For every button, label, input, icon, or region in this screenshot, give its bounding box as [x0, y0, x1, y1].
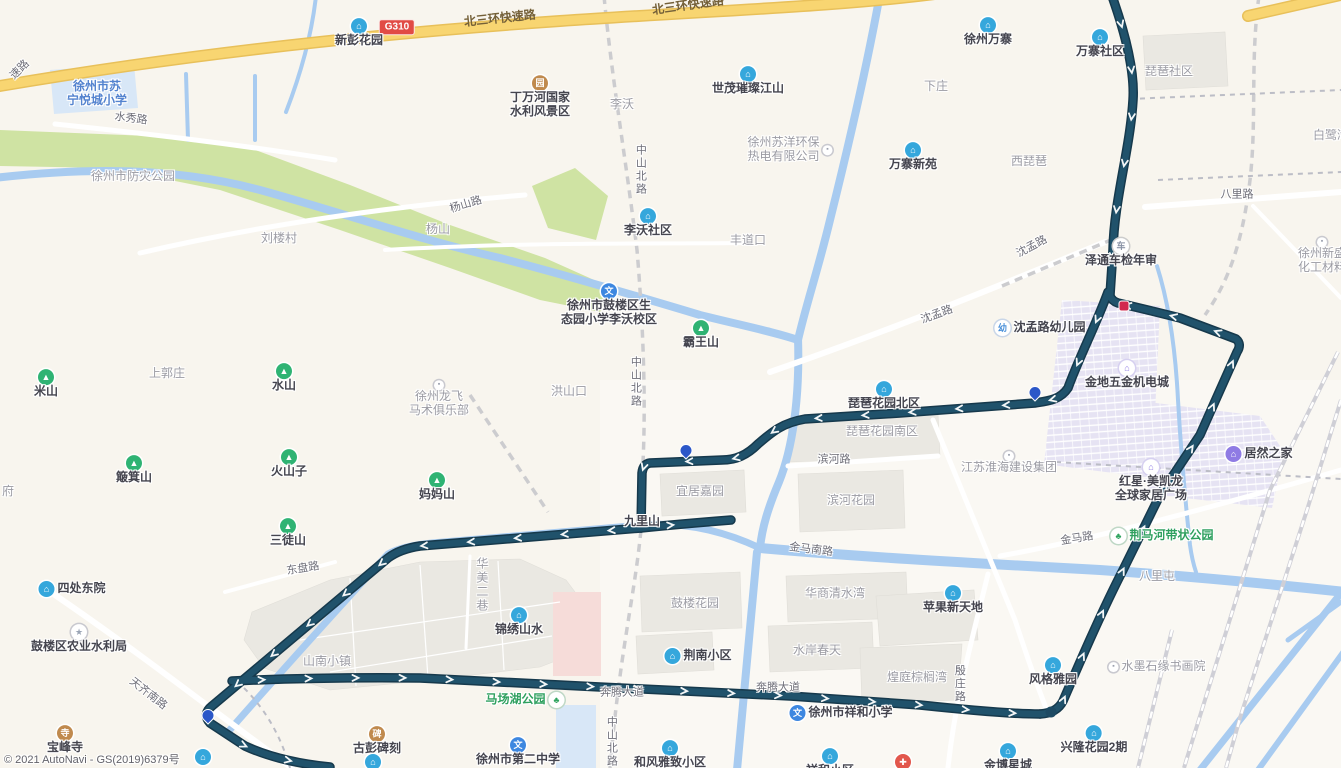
area-label-fangzai-park: 徐州市防灾公园	[91, 170, 175, 184]
bus-stop-pin[interactable]	[1029, 386, 1042, 399]
label-text: 中山北路	[634, 144, 647, 196]
label-text: 徐州万寨	[964, 33, 1012, 47]
poi-xinsheng-chemical[interactable]: ▪徐州新盛化工材料	[1298, 237, 1341, 275]
area-label-fengdaokou: 丰道口	[730, 234, 766, 248]
dot-white-icon: ▪	[1108, 662, 1118, 672]
poi-icon-clipped[interactable]: ⌂	[365, 754, 381, 768]
label-text: 新彭花园	[335, 34, 383, 48]
label-text: 徐州市鼓楼区生态园小学李沃校区	[561, 299, 657, 327]
carve-brown-icon: 碑	[369, 726, 385, 742]
label-text: 奔腾大道	[756, 682, 800, 695]
label-text: 洪山口	[551, 385, 587, 399]
label-text: 宜居嘉园	[676, 485, 724, 499]
label-text: 徐州苏洋环保热电有限公司	[747, 136, 819, 164]
area-label-hongshankou: 洪山口	[551, 385, 587, 399]
area-label-pipa-garden-south: 琵琶花园南区	[846, 425, 918, 439]
mountain-green-icon: ▲	[280, 518, 296, 534]
area-label-jiulishan: 九里山	[624, 515, 660, 529]
mountain-green-icon: ▲	[126, 455, 142, 471]
label-text: 四处东院	[57, 582, 105, 596]
poi-mamashan[interactable]: ▲妈妈山	[419, 472, 455, 502]
area-label-binhe-garden: 滨河花园	[827, 494, 875, 508]
label-text: 山南小镇	[303, 655, 351, 669]
label-text: 徐州新盛化工材料	[1298, 247, 1341, 275]
poi-jingmahe-park[interactable]: ♣荆马河带状公园	[1110, 528, 1213, 544]
area-label-huamei-lane: 华美二巷	[474, 557, 488, 613]
label-text: 红星·美凯龙全球家居广场	[1115, 475, 1187, 503]
bus-stop-pin[interactable]	[202, 709, 215, 722]
poi-icon-clipped[interactable]: ⌂	[195, 749, 211, 765]
label-text: 杨山	[426, 223, 450, 237]
label-text: 世茂璀璨江山	[712, 82, 784, 96]
shop-purple-icon: ⌂	[1225, 446, 1241, 462]
poi-xianghe-primary-school[interactable]: 文徐州市祥和小学	[789, 705, 892, 721]
label-text: 琵琶花园北区	[848, 397, 920, 411]
building-blue-icon: ⌂	[365, 754, 381, 768]
label-text: 水岸春天	[793, 644, 841, 658]
label-text: 霸王山	[683, 336, 719, 350]
label-text: 鼓楼花园	[671, 597, 719, 611]
label-text: 风格雅园	[1029, 673, 1077, 687]
building-blue-icon: ⌂	[1045, 657, 1061, 673]
dot-white-icon: ▪	[823, 145, 833, 155]
hospital-red-icon: ✚	[895, 754, 911, 768]
label-text: 八里屯	[1139, 570, 1175, 584]
label-text: 上郭庄	[149, 367, 185, 381]
area-label-bailuwan: 白鹭湾	[1313, 129, 1341, 143]
label-text: 泽通车检年审	[1085, 254, 1157, 268]
label-text: 金博星城	[984, 759, 1032, 768]
label-text: 琵琶社区	[1145, 65, 1193, 79]
poi-suning-yuecheng-school: 徐州市苏宁悦城小学	[67, 80, 127, 108]
area-label-liwo: 李沃	[610, 98, 634, 112]
label-text: 荆马河带状公园	[1129, 529, 1213, 543]
building-blue-icon: ⌂	[1086, 725, 1102, 741]
label-text: 中山北路	[629, 356, 642, 408]
label-text: 苹果新天地	[923, 601, 983, 615]
map-canvas[interactable]: 北三环快速路北三环快速路速路G310水秀路杨山路中山北路中山北路中山北路沈孟路沈…	[0, 0, 1341, 768]
area-label-pipa-community: 琵琶社区	[1145, 65, 1193, 79]
area-label-balitun: 八里屯	[1139, 570, 1175, 584]
label-text: 兴隆花园2期	[1061, 741, 1128, 755]
area-label-shannan-town: 山南小镇	[303, 655, 351, 669]
label-text: 丁万河国家水利风景区	[510, 91, 570, 119]
label-text: 华商清水湾	[805, 587, 865, 601]
mountain-green-icon: ▲	[281, 449, 297, 465]
label-text: 滨河路	[818, 454, 851, 467]
building-blue-icon: ⌂	[1092, 29, 1108, 45]
poi-hongxing-meikailong[interactable]: ⌂红星·美凯龙全球家居广场	[1115, 459, 1187, 503]
label-text: 火山子	[271, 465, 307, 479]
building-blue-icon: ⌂	[664, 648, 680, 664]
bus-stop-pin-icon	[199, 706, 217, 724]
area-label-huashang-qingshuiwan: 华商清水湾	[805, 587, 865, 601]
label-text: 马场湖公园	[485, 693, 545, 707]
area-label-liulou-village: 刘楼村	[261, 232, 297, 246]
poi-no2-middle-school[interactable]: 文徐州市第二中学	[476, 737, 560, 767]
label-text: 殷庄路	[953, 665, 966, 704]
label-text: 下庄	[924, 80, 948, 94]
poi-jinxiu-shanshui[interactable]: ⌂锦绣山水	[495, 607, 543, 637]
poi-liwo-community[interactable]: ⌂李沃社区	[624, 208, 672, 238]
road-label-yinzhuang: 殷庄路	[953, 665, 966, 704]
building-blue-icon: ⌂	[640, 208, 656, 224]
poi-mishan[interactable]: ▲米山	[34, 369, 58, 399]
road-label-zhongshan-north: 中山北路	[605, 716, 618, 768]
label-text: 沈孟路幼儿园	[1013, 321, 1085, 335]
area-label-yiju-garden: 宜居嘉园	[676, 485, 724, 499]
mountain-green-icon: ▲	[429, 472, 445, 488]
route-corner-node[interactable]	[1051, 712, 1062, 723]
poi-hospital-clipped[interactable]: ✚	[895, 754, 911, 768]
scenic-brown-icon: 园	[532, 75, 548, 91]
label-text: 八里路	[1221, 189, 1254, 202]
label-text: 李沃社区	[624, 224, 672, 238]
label-text: 徐州市苏宁悦城小学	[67, 80, 127, 108]
poi-jindi-hardware-city[interactable]: ⌂金地五金机电城	[1085, 360, 1169, 390]
poi-hefeng-yazhi[interactable]: ⌂和风雅致小区	[634, 740, 706, 768]
poi-gupeng-steles[interactable]: 碑古彭碑刻	[353, 726, 401, 756]
bus-stop-pin-icon	[1026, 383, 1044, 401]
label-text: 万寨社区	[1076, 45, 1124, 59]
park-green-icon: ♣	[1110, 528, 1126, 544]
poi-dingwanhe-scenic-area[interactable]: 园丁万河国家水利风景区	[510, 75, 570, 119]
label-text: 中山北路	[605, 716, 618, 768]
star-gray-icon: ★	[71, 624, 87, 640]
poi-huaihai-construction-group[interactable]: ▪江苏淮海建设集团	[961, 451, 1057, 475]
poi-jingnan-community[interactable]: ⌂荆南小区	[664, 648, 731, 664]
school-blue-icon: 文	[789, 705, 805, 721]
shop-purple-light-icon: ⌂	[1119, 360, 1135, 376]
area-label-partial: 府	[2, 485, 14, 499]
label-text: 徐州市防灾公园	[91, 170, 175, 184]
bus-stop-pin[interactable]	[680, 444, 693, 457]
label-text: 江苏淮海建设集团	[961, 461, 1057, 475]
label-text: 煌庭棕榈湾	[887, 671, 947, 685]
label-text: 琵琶花园南区	[846, 425, 918, 439]
road-label-bali: 八里路	[1221, 189, 1254, 202]
building-blue-icon: ⌂	[1000, 743, 1016, 759]
poi-wanzhai-xinyuan[interactable]: ⌂万寨新苑	[889, 142, 937, 172]
poi-wanzhai-community[interactable]: ⌂万寨社区	[1076, 29, 1124, 59]
area-label-xipipa: 西琵琶	[1011, 155, 1047, 169]
building-blue-icon: ⌂	[662, 740, 678, 756]
poi-sichu-dongyuan[interactable]: ⌂四处东院	[38, 581, 105, 597]
label-text: 水山	[272, 379, 296, 393]
building-blue-icon: ⌂	[905, 142, 921, 158]
label-text: 刘楼村	[261, 232, 297, 246]
building-blue-icon: ⌂	[876, 381, 892, 397]
label-text: G310	[385, 21, 409, 33]
label-text: 簸箕山	[116, 471, 152, 485]
car-white-icon: 车	[1113, 238, 1129, 254]
building-blue-icon: ⌂	[38, 581, 54, 597]
label-text: 徐州市祥和小学	[808, 706, 892, 720]
label-text: 徐州龙飞马术俱乐部	[409, 390, 469, 418]
label-text: 万寨新苑	[889, 158, 937, 172]
building-blue-icon: ⌂	[822, 748, 838, 764]
poi-shengtaiyuan-school-liwo[interactable]: 文徐州市鼓楼区生态园小学李沃校区	[561, 283, 657, 327]
area-label-shangguozhuang: 上郭庄	[149, 367, 185, 381]
mountain-green-icon: ▲	[38, 369, 54, 385]
poi-jinbo-xingcheng[interactable]: ⌂金博星城	[984, 743, 1032, 768]
shop-purple-light-icon: ⌂	[1143, 459, 1159, 475]
label-text: 奔腾大道	[600, 687, 644, 700]
school-blue-icon: 文	[510, 737, 526, 753]
label-text: 李沃	[610, 98, 634, 112]
label-text: 和风雅致小区	[634, 756, 706, 768]
highway-badge-g310: G310	[379, 19, 415, 35]
label-text: 锦绣山水	[495, 623, 543, 637]
poi-xinpeng-garden[interactable]: ⌂新彭花园	[335, 18, 383, 48]
label-text: 水墨石缘书画院	[1121, 660, 1205, 674]
poi-bawangshan[interactable]: ▲霸王山	[683, 320, 719, 350]
temple-brown-icon: 寺	[57, 725, 73, 741]
mountain-green-icon: ▲	[693, 320, 709, 336]
poi-juran-home[interactable]: ⌂居然之家	[1225, 446, 1292, 462]
label-text: 妈妈山	[419, 488, 455, 502]
label-text: 华美二巷	[474, 557, 488, 613]
label-text: 白鹭湾	[1313, 129, 1341, 143]
poi-shenmeng-kindergarten[interactable]: 幼沈孟路幼儿园	[994, 320, 1085, 336]
building-blue-icon: ⌂	[945, 585, 961, 601]
label-text: 九里山	[624, 515, 660, 529]
label-text: 丰道口	[730, 234, 766, 248]
dot-navy-icon	[1046, 707, 1057, 718]
label-text: 徐州市第二中学	[476, 753, 560, 767]
area-label-yangshan: 杨山	[426, 223, 450, 237]
poi-xianghe-community[interactable]: ⌂祥和小区	[806, 748, 854, 768]
area-label-huangting-zonglvwan: 煌庭棕榈湾	[887, 671, 947, 685]
poi-bojishan[interactable]: ▲簸箕山	[116, 455, 152, 485]
label-text: 三徒山	[270, 534, 306, 548]
label-text: 鼓楼区农业水利局	[31, 640, 127, 654]
road-label-zhongshan-north: 中山北路	[634, 144, 647, 196]
poi-pipa-garden-north[interactable]: ⌂琵琶花园北区	[848, 381, 920, 411]
area-label-shuian-chuntian: 水岸春天	[793, 644, 841, 658]
poi-santushan[interactable]: ▲三徒山	[270, 518, 306, 548]
poi-shimao[interactable]: ⌂世茂璀璨江山	[712, 66, 784, 96]
kindergarten-white-icon: 幼	[994, 320, 1010, 336]
poi-shuishan[interactable]: ▲水山	[272, 363, 296, 393]
building-blue-icon: ⌂	[511, 607, 527, 623]
poi-machanghu-park[interactable]: 马场湖公园♣	[485, 692, 564, 708]
poi-huoshanzi[interactable]: ▲火山子	[271, 449, 307, 479]
bus-stop-pin-icon	[677, 441, 695, 459]
label-text: 滨河花园	[827, 494, 875, 508]
park-green-icon: ♣	[549, 692, 565, 708]
mountain-green-icon: ▲	[276, 363, 292, 379]
road-label-binhe: 滨河路	[818, 454, 851, 467]
poi-shuimo-art-academy[interactable]: ▪水墨石缘书画院	[1108, 660, 1205, 674]
poi-xinglong-garden-2[interactable]: ⌂兴隆花园2期	[1061, 725, 1128, 755]
selected-stop-marker[interactable]	[1124, 306, 1135, 317]
poi-suyang-thermal-power[interactable]: 徐州苏洋环保热电有限公司▪	[747, 136, 832, 164]
road-label-benteng-avenue: 奔腾大道	[756, 682, 800, 695]
poi-fengge-yayuan[interactable]: ⌂风格雅园	[1029, 657, 1077, 687]
label-text: 米山	[34, 385, 58, 399]
school-blue-icon: 文	[601, 283, 617, 299]
label-text: 荆南小区	[683, 649, 731, 663]
area-label-gulou-garden: 鼓楼花园	[671, 597, 719, 611]
road-label-benteng-avenue: 奔腾大道	[600, 687, 644, 700]
label-text: 祥和小区	[806, 764, 854, 768]
poi-gulou-water-bureau[interactable]: ★鼓楼区农业水利局	[31, 624, 127, 654]
label-text: 居然之家	[1244, 447, 1292, 461]
poi-longfei-equestrian-club[interactable]: ▪徐州龙飞马术俱乐部	[409, 380, 469, 418]
poi-xuzhou-wanzhai[interactable]: ⌂徐州万寨	[964, 17, 1012, 47]
building-blue-icon: ⌂	[980, 17, 996, 33]
poi-pingguo-xintiandi[interactable]: ⌂苹果新天地	[923, 585, 983, 615]
building-blue-icon: ⌂	[351, 18, 367, 34]
road-label-zhongshan-north: 中山北路	[629, 356, 642, 408]
dot-red-icon	[1119, 301, 1130, 312]
label-text: 府	[2, 485, 14, 499]
map-attribution: © 2021 AutoNavi - GS(2019)6379号	[4, 751, 180, 767]
label-text: 西琵琶	[1011, 155, 1047, 169]
label-text: 金地五金机电城	[1085, 376, 1169, 390]
area-label-xiazhuang: 下庄	[924, 80, 948, 94]
poi-zetong-vehicle-inspection[interactable]: 车泽通车检年审	[1085, 238, 1157, 268]
building-blue-icon: ⌂	[740, 66, 756, 82]
building-blue-icon: ⌂	[195, 749, 211, 765]
